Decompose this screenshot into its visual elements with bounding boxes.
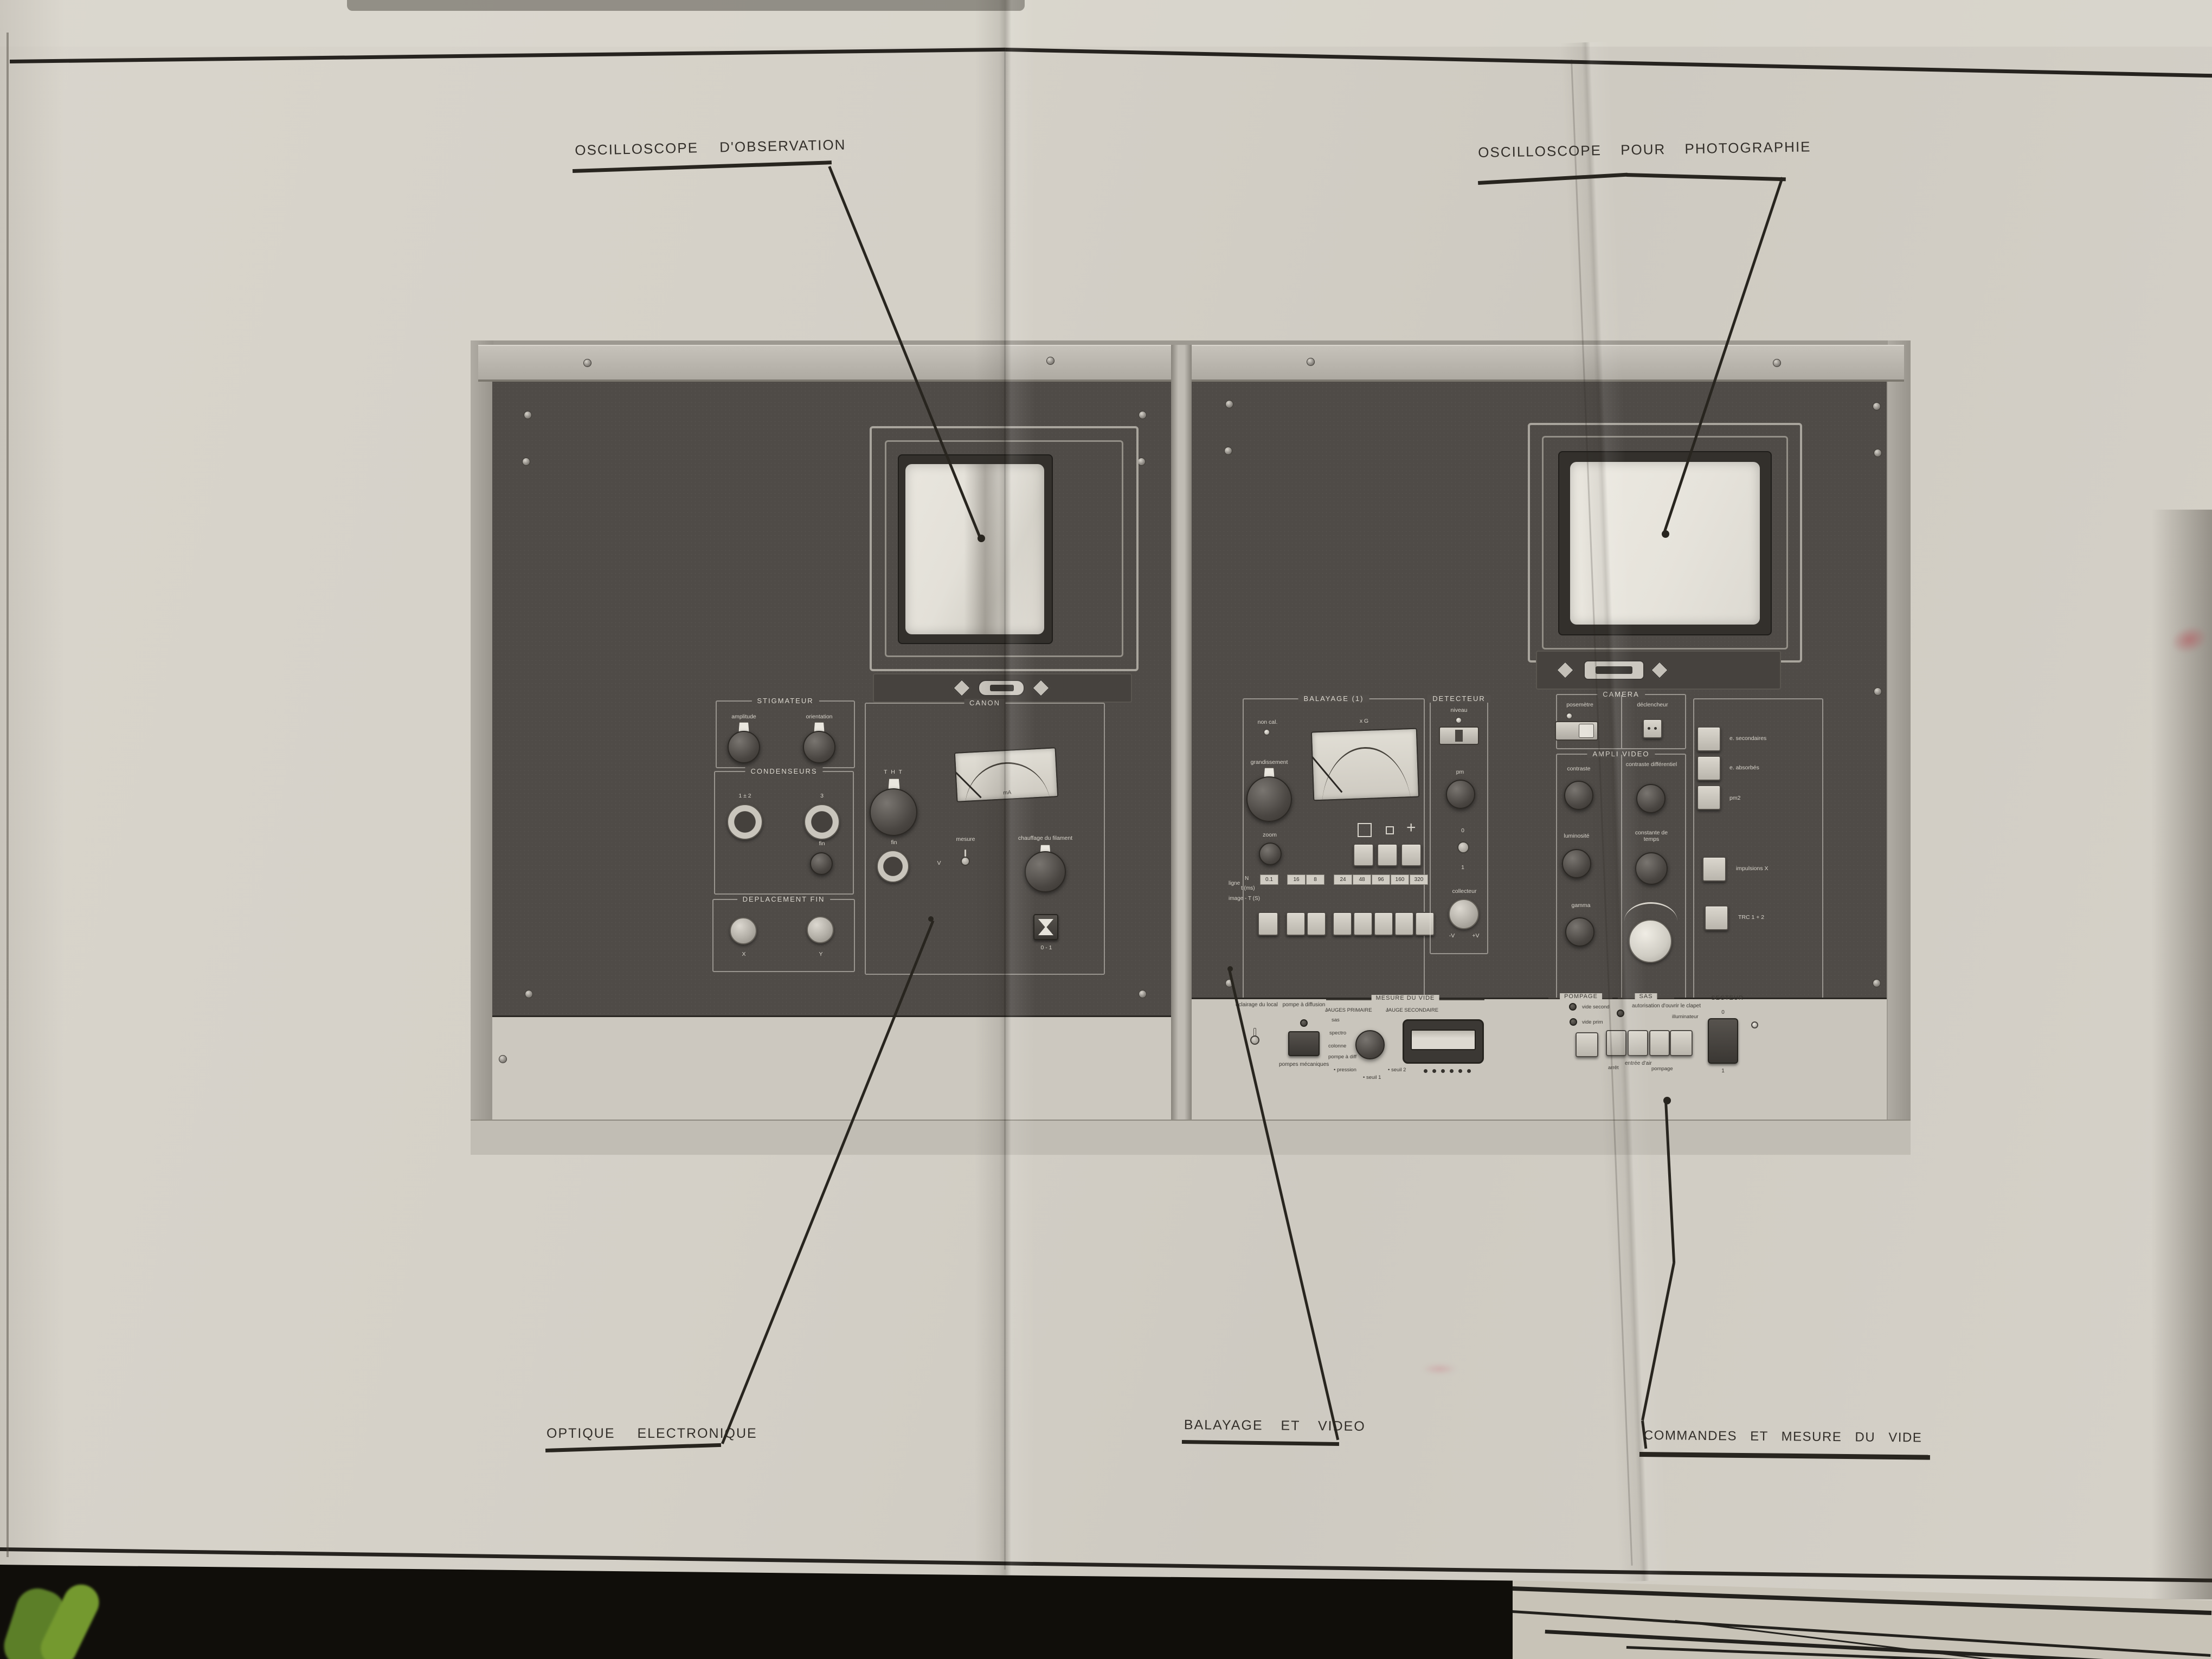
page-edge-shadow [2151,510,2212,1599]
label-collecteur: collecteur [1452,888,1477,895]
frame-border-top-right [1006,48,2212,78]
speed-select-button [1286,912,1306,936]
signal-button [1697,785,1721,810]
eclairage-toggle [1250,1036,1259,1045]
label-illuminateur: illuminateur [1672,1014,1699,1020]
rack-frame-left [471,340,493,1155]
deplacement-x-knob [730,917,757,944]
pompe-diffusion-button [1288,1031,1320,1056]
label-entree-air: entrée d'air [1625,1060,1651,1067]
illuminateur-button [1670,1030,1693,1056]
crt-observation-screen [905,464,1044,634]
row-label-tms: t (ms) [1241,885,1255,891]
sas-button-arret [1606,1030,1626,1056]
signal-button [1705,905,1728,930]
sas-button-pompage [1649,1030,1670,1056]
section-title-mesure-du-vide: MESURE DU VIDE [1372,995,1439,1001]
label-contraste-differentiel: contraste différentiel [1624,761,1679,768]
label-vide-second: vide second [1582,1004,1610,1010]
gauge-selector-knob [1355,1030,1385,1059]
small-frame-icon [1386,826,1394,834]
label-eclairage-local: éclairage du local [1236,1002,1276,1008]
selector-pos-colonne: colonne [1328,1043,1346,1049]
label-autorisation-clapet: autorisation d'ouvrir le clapet [1632,1003,1677,1009]
label-niveau: niveau [1451,707,1468,713]
axis-label-y: Y [819,951,822,957]
label-luminosite: luminosité [1564,833,1589,839]
knob-label-orientation: orientation [806,713,832,720]
chauffage-filament-knob [1025,851,1066,892]
label-1: 1 [1461,864,1464,871]
speed-select-button [1394,912,1414,936]
selector-pos-pompe-diff: pompe à diff [1328,1054,1356,1060]
label-pm: pm [1456,769,1464,775]
sas-button-entree-air [1628,1030,1648,1056]
amplitude-knob [728,731,760,763]
knob-label-zoom: zoom [1263,832,1277,838]
knob-label-1-2: 1 ± 2 [738,793,751,799]
condenser-fin-knob [810,852,833,875]
tht-knob [870,788,917,836]
speed-value: 320 [1410,874,1428,885]
label-contraste: contraste [1567,766,1590,772]
left-rack-lower-panel [492,1015,1171,1120]
axis-label-x: X [742,951,745,957]
console-desk-edge [471,1120,1911,1155]
label-pompe-diffusion: pompe à diffusion [1282,1002,1326,1008]
sheet-top-band [0,0,2212,47]
label-gamma: gamma [1571,902,1590,909]
group-title: CANON [964,699,1006,707]
detecteur-toggle [1457,841,1469,853]
group-title: DETECTEUR [1427,695,1490,703]
background-sliver [347,0,1025,11]
speed-value: 24 [1334,874,1352,885]
label-pompage: pompage [1651,1066,1673,1072]
label-arret: arrêt [1608,1065,1619,1071]
speed-select-button [1307,912,1326,936]
full-frame-icon [1358,823,1372,837]
label-jauges-primaire: JAUGES PRIMAIRE [1325,1007,1372,1013]
gamma-knob [1565,917,1594,947]
leader-dot [928,916,934,922]
signal-button [1702,857,1726,882]
label-constante-de-temps: constante de temps [1627,829,1676,843]
speed-select-button [1374,912,1393,936]
console-photograph: STIGMATEUR amplitude orientation CONDENS… [471,340,1911,1155]
leader-dot [1662,530,1669,538]
section-title-secteur: SECTEUR [1707,995,1748,1001]
frame-border-top-left [10,48,1006,63]
deplacement-y-knob [807,916,834,943]
speed-value: 160 [1391,874,1409,885]
pm-knob [1446,780,1475,809]
speed-value: 96 [1372,874,1390,885]
section-title-pompage: POMPAGE [1560,993,1602,1000]
connector-strip [1536,651,1781,690]
leader-dot [1663,1097,1671,1104]
posemetre-slider [1555,721,1598,741]
raster-mode-button [1401,844,1422,866]
group-title: CONDENSEURS [745,767,822,775]
label-0: 0 [1461,827,1464,834]
vacuum-display-window [1403,1019,1484,1064]
row-label-image: image - T (S) [1229,896,1260,902]
knob-label-chauffage: chauffage du filament [1018,835,1072,841]
label-secteur-1: 1 [1721,1068,1725,1075]
signal-label: impulsions X [1736,865,1769,872]
speed-value: 48 [1353,874,1371,885]
knob-label-fin: fin [819,840,825,847]
label-declencheur: déclencheur [1637,702,1668,708]
label-plus-v: +V [1472,933,1479,939]
condenser-1-2-knob [727,804,763,840]
group-title: DEPLACEMENT FIN [737,895,831,903]
selector-pos-seuil1: • seuil 1 [1363,1075,1381,1081]
spot-crosshair-icon: + [1406,819,1416,837]
contraste-differentiel-knob [1636,784,1666,813]
knob-label-3: 3 [820,793,824,799]
mesure-toggle [961,857,970,866]
contraste-knob [1564,781,1593,810]
orientation-knob [803,731,835,763]
knob-label-tht: T H T [884,769,903,775]
knob-label-fin: fin [891,839,897,846]
signal-button [1697,726,1721,751]
speed-select-button [1258,912,1278,936]
selector-pos-spectro: spectro [1329,1030,1346,1036]
condenser-3-knob [804,804,840,840]
declencheur-button [1643,719,1662,738]
luminosite-knob [1562,849,1591,878]
label-commandes-mesure-vide: COMMANDES ET MESURE DU VIDE [1644,1428,1922,1445]
speed-select-button [1353,912,1373,936]
tht-fin-knob [877,850,909,883]
vacuum-control-strip [1192,998,1887,1120]
niveau-slider [1439,726,1479,745]
meter-label-xg: x G [1360,718,1368,724]
speed-value: 8 [1306,874,1324,885]
selector-pos-pression: • pression [1334,1067,1356,1073]
signal-label: pm2 [1729,795,1740,801]
balayage-meter [1311,728,1419,801]
group-title: STIGMATEUR [751,697,819,705]
photographed-manual-foldout: STIGMATEUR amplitude orientation CONDENS… [0,0,2212,1659]
selector-pos-sas: sas [1332,1017,1340,1023]
knob-label-amplitude: amplitude [731,713,756,720]
rack-divider [1171,345,1192,1155]
crt-photography-screen [1570,462,1760,625]
group-title: BALAYAGE (1) [1298,695,1369,703]
label-vide-prim: vide prim [1582,1019,1603,1025]
signal-button [1697,756,1721,781]
leader-dot [978,535,985,542]
secteur-rocker [1708,1018,1738,1064]
label-balayage-et-video: BALAYAGE ET VIDEO [1184,1417,1366,1435]
connector-strip [873,673,1132,703]
rocker-label-0-1: 0 - 1 [1040,944,1052,951]
signal-label: e. secondaires [1729,735,1766,742]
frame-border-left [7,33,9,1557]
label-non-cal: non cal. [1258,719,1278,725]
signal-label: TRC 1 + 2 [1738,914,1764,921]
canon-current-meter: mA [954,747,1059,802]
canon-power-rocker [1033,914,1058,940]
speed-select-button [1333,912,1352,936]
label-pompes-mecaniques: pompes mécaniques [1279,1062,1329,1068]
label-v: V [937,860,941,866]
rack-frame-right [1888,340,1911,1155]
section-title-sas: SAS [1635,993,1657,1000]
label-posemetre: posemètre [1566,702,1593,708]
label-secteur-0: 0 [1721,1009,1725,1016]
raster-mode-button [1377,844,1398,866]
speed-value: 16 [1287,874,1306,885]
pompage-button [1576,1032,1598,1057]
pink-smudge [1416,1362,1463,1376]
time-constant-dial [1629,919,1672,963]
zoom-knob [1259,843,1282,865]
label-minus-v: -V [1449,933,1455,939]
toggle-label-mesure: mesure [956,836,975,843]
constante-temps-knob [1635,852,1668,885]
knob-label-grandissement: grandissement [1251,759,1288,766]
collecteur-knob [1449,899,1479,929]
selector-pos-seuil2: • seuil 2 [1388,1067,1406,1073]
fold-crease-line [1004,52,1006,1570]
speed-value: 0.1 [1260,874,1278,885]
leader-dot [1227,966,1233,972]
label-jauge-secondaire: JAUGE SECONDAIRE [1386,1007,1438,1013]
signal-label: e. absorbés [1729,764,1759,771]
row-label-ligne: ligne [1229,880,1240,886]
raster-mode-button [1353,844,1374,866]
row-label-n: N [1245,876,1249,882]
grandissement-knob [1246,776,1292,822]
